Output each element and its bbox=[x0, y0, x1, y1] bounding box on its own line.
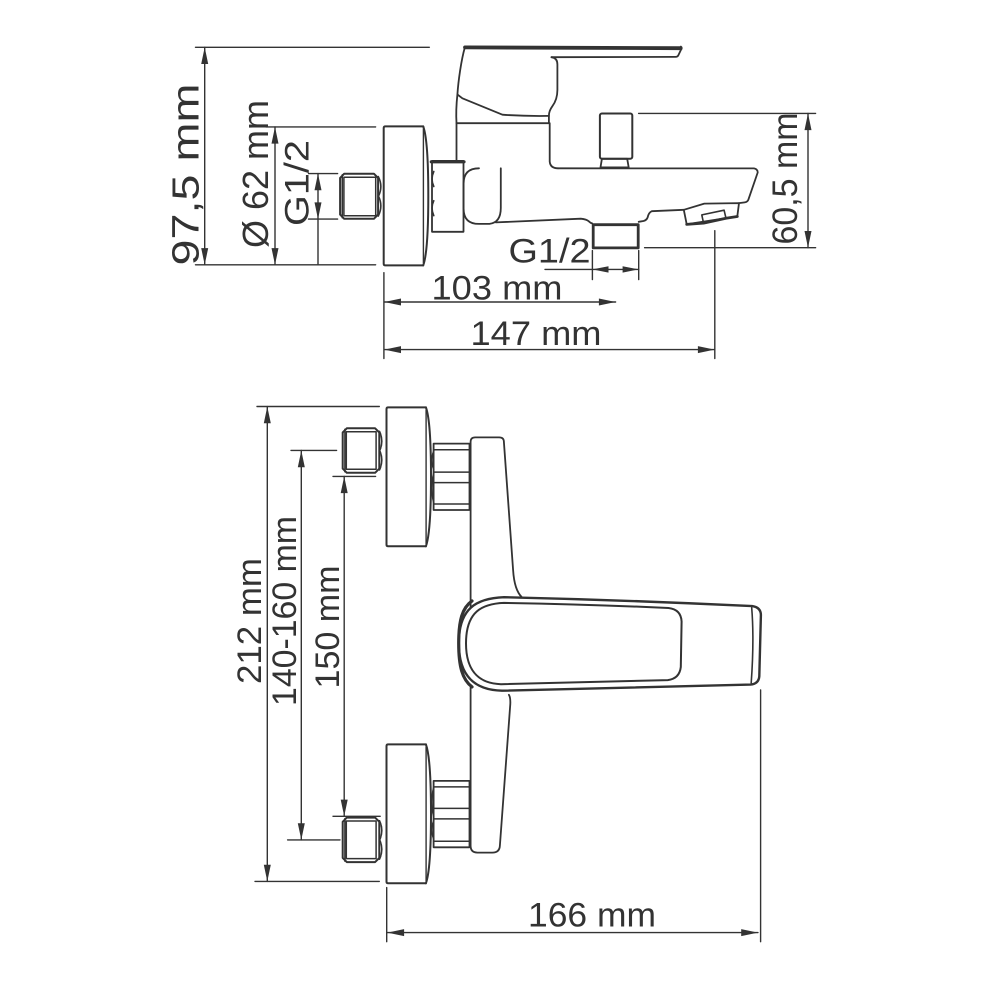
svg-text:140-160 mm: 140-160 mm bbox=[266, 516, 304, 706]
svg-text:147 mm: 147 mm bbox=[471, 315, 602, 353]
svg-text:166 mm: 166 mm bbox=[528, 897, 656, 935]
svg-text:212 mm: 212 mm bbox=[231, 558, 269, 684]
svg-text:G1/2: G1/2 bbox=[509, 233, 591, 271]
svg-text:Ø 62 mm: Ø 62 mm bbox=[235, 100, 276, 248]
svg-text:60,5 mm: 60,5 mm bbox=[766, 113, 805, 245]
svg-text:150 mm: 150 mm bbox=[309, 566, 347, 689]
svg-text:G1/2: G1/2 bbox=[279, 140, 317, 226]
svg-text:103 mm: 103 mm bbox=[432, 270, 563, 308]
svg-text:97,5 mm: 97,5 mm bbox=[166, 84, 208, 266]
